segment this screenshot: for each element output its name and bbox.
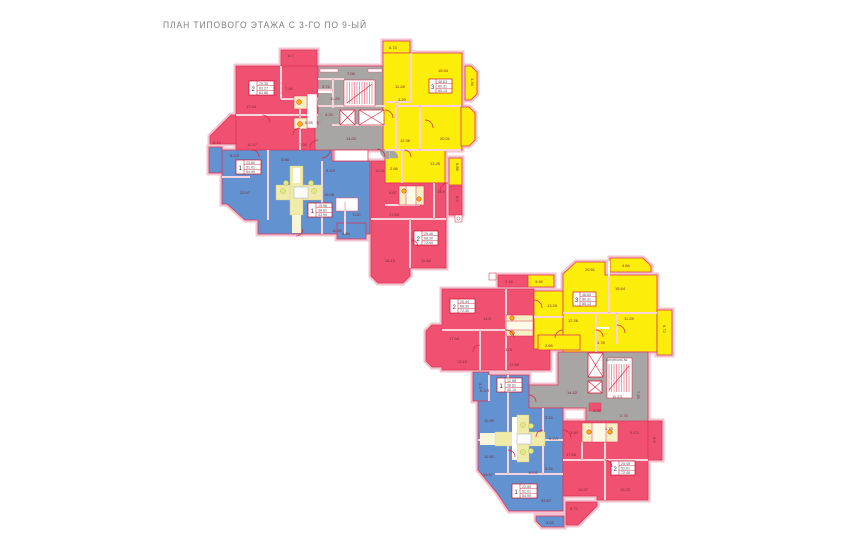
svg-text:4.3: 4.3 (478, 383, 483, 389)
svg-text:5.55: 5.55 (305, 120, 314, 125)
svg-text:4.34: 4.34 (470, 78, 475, 87)
svg-text:12.37: 12.37 (247, 142, 258, 147)
svg-text:51.01: 51.01 (246, 166, 255, 170)
svg-text:12.36: 12.36 (400, 138, 411, 143)
svg-text:63.27: 63.27 (259, 87, 268, 91)
svg-text:85.13: 85.13 (582, 302, 591, 306)
svg-text:15.06: 15.06 (324, 192, 335, 197)
svg-text:25.45: 25.45 (621, 462, 630, 466)
svg-text:23.80: 23.80 (246, 161, 255, 165)
svg-text:15.96: 15.96 (318, 204, 327, 208)
svg-text:К.СЛ: К.СЛ (480, 388, 489, 393)
svg-text:11.95: 11.95 (484, 418, 494, 423)
svg-text:25.46: 25.46 (424, 232, 433, 236)
svg-text:3.29: 3.29 (398, 97, 407, 102)
svg-text:6.72: 6.72 (662, 325, 667, 334)
svg-text:11.23: 11.23 (612, 394, 622, 399)
svg-text:Антресоль №: Антресоль № (606, 358, 628, 362)
svg-text:25.44: 25.44 (460, 300, 469, 304)
svg-text:11.28: 11.28 (395, 84, 405, 89)
svg-text:13.25: 13.25 (430, 161, 441, 166)
svg-text:14.9: 14.9 (483, 316, 492, 321)
svg-text:13.29: 13.29 (547, 303, 558, 308)
svg-text:К.СЛ: К.СЛ (326, 168, 335, 173)
svg-text:38.81: 38.81 (318, 209, 327, 213)
svg-text:15.94: 15.94 (438, 68, 449, 73)
svg-text:7.26: 7.26 (299, 142, 308, 147)
svg-text:54.99: 54.99 (522, 494, 531, 498)
svg-text:38.81: 38.81 (507, 384, 516, 388)
svg-text:11.28: 11.28 (624, 316, 634, 321)
svg-text:15.64: 15.64 (615, 286, 626, 291)
svg-text:17.24: 17.24 (246, 104, 257, 109)
svg-text:48.63: 48.63 (438, 80, 447, 84)
svg-text:1.78: 1.78 (605, 426, 614, 431)
svg-text:23.80: 23.80 (522, 485, 531, 489)
svg-text:68.30: 68.30 (424, 237, 433, 241)
svg-text:80.31: 80.31 (582, 298, 591, 302)
svg-text:11.01: 11.01 (375, 168, 385, 173)
svg-text:8.19: 8.19 (213, 140, 222, 145)
svg-text:11.25: 11.25 (332, 228, 342, 233)
svg-text:85.13: 85.13 (438, 89, 447, 93)
svg-text:ПЛАН ТИПОВОГО ЭТАЖА С 3-ГО ПО: ПЛАН ТИПОВОГО ЭТАЖА С 3-ГО ПО 9-ЫЙ (163, 19, 367, 30)
svg-text:33.57: 33.57 (541, 498, 552, 503)
svg-text:7.29: 7.29 (636, 391, 641, 400)
svg-text:72.40: 72.40 (424, 241, 433, 245)
svg-text:51.01: 51.01 (522, 490, 531, 494)
svg-text:3.78: 3.78 (597, 340, 606, 345)
svg-text:72.40: 72.40 (460, 309, 469, 313)
svg-text:Т.СЛ: Т.СЛ (352, 212, 361, 217)
svg-text:15.16: 15.16 (457, 359, 468, 364)
svg-text:8.9: 8.9 (455, 196, 460, 202)
svg-text:10.01: 10.01 (528, 470, 539, 475)
svg-text:29.35: 29.35 (259, 82, 268, 86)
svg-text:12.88: 12.88 (507, 379, 516, 383)
svg-text:6.86: 6.86 (455, 163, 460, 172)
svg-text:3.64: 3.64 (342, 231, 351, 236)
svg-text:14.52: 14.52 (567, 390, 578, 395)
svg-text:3.05: 3.05 (546, 520, 555, 525)
svg-text:3.24: 3.24 (545, 466, 554, 471)
svg-text:2.66: 2.66 (390, 166, 399, 171)
svg-text:4.25: 4.25 (593, 408, 602, 413)
svg-text:23.97: 23.97 (240, 190, 251, 195)
svg-text:3.24: 3.24 (545, 415, 554, 420)
svg-text:63.86: 63.86 (259, 91, 268, 95)
svg-text:15.15: 15.15 (385, 258, 396, 263)
svg-text:52.01: 52.01 (621, 467, 630, 471)
svg-text:11.88: 11.88 (421, 258, 431, 263)
svg-text:72.40: 72.40 (621, 471, 630, 475)
svg-text:14.9: 14.9 (437, 189, 446, 194)
svg-text:12.27: 12.27 (578, 487, 589, 492)
svg-text:3.74: 3.74 (322, 84, 331, 89)
svg-text:20.01: 20.01 (440, 136, 451, 141)
svg-text:2.65: 2.65 (545, 343, 554, 348)
svg-text:К.СЛ: К.СЛ (230, 153, 239, 158)
svg-text:17.85: 17.85 (389, 212, 400, 217)
svg-text:К.СЛ: К.СЛ (630, 430, 639, 435)
svg-text:7.08: 7.08 (347, 71, 356, 76)
svg-text:8.9: 8.9 (652, 437, 657, 443)
svg-text:6.7: 6.7 (288, 53, 294, 58)
svg-text:14.02: 14.02 (346, 136, 357, 141)
svg-text:11.90: 11.90 (484, 454, 494, 459)
svg-text:8.77: 8.77 (570, 506, 579, 511)
svg-text:68.30: 68.30 (460, 305, 469, 309)
svg-text:12.36: 12.36 (568, 318, 579, 323)
svg-text:80.31: 80.31 (438, 85, 447, 89)
svg-text:43.99: 43.99 (318, 213, 327, 217)
svg-text:13.57: 13.57 (483, 472, 494, 477)
svg-text:2.16: 2.16 (505, 279, 514, 284)
svg-text:17.85: 17.85 (566, 452, 577, 457)
svg-text:3.45: 3.45 (535, 279, 544, 284)
svg-text:15.25: 15.25 (620, 487, 631, 492)
svg-text:3.01: 3.01 (505, 347, 514, 352)
svg-text:48.63: 48.63 (582, 293, 591, 297)
svg-text:К.СЛ: К.СЛ (549, 436, 558, 441)
svg-text:4.25: 4.25 (325, 112, 334, 117)
svg-text:17.85: 17.85 (509, 362, 520, 367)
svg-text:4.84: 4.84 (622, 263, 631, 268)
svg-text:6.73: 6.73 (389, 45, 398, 50)
svg-text:3.86: 3.86 (281, 157, 290, 162)
svg-text:45.10: 45.10 (507, 388, 516, 392)
svg-text:7.48: 7.48 (285, 86, 294, 91)
svg-text:54.99: 54.99 (246, 170, 255, 174)
svg-text:11.25: 11.25 (330, 96, 340, 101)
svg-text:4.87: 4.87 (389, 190, 398, 195)
svg-text:17.38: 17.38 (449, 336, 460, 341)
svg-text:20.51: 20.51 (585, 267, 596, 272)
svg-text:2.74: 2.74 (620, 413, 629, 418)
svg-text:3.85: 3.85 (570, 430, 579, 435)
